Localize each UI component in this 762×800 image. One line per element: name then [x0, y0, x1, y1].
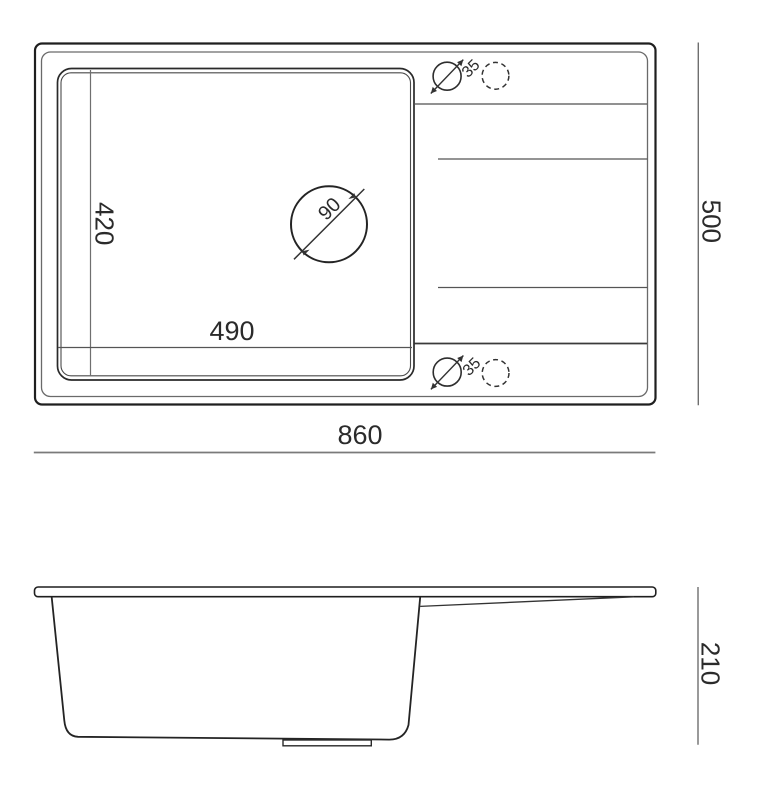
svg-text:210: 210	[696, 642, 726, 685]
svg-text:500: 500	[697, 200, 727, 243]
svg-text:860: 860	[337, 420, 382, 450]
svg-text:420: 420	[90, 202, 120, 245]
svg-text:490: 490	[209, 316, 254, 346]
